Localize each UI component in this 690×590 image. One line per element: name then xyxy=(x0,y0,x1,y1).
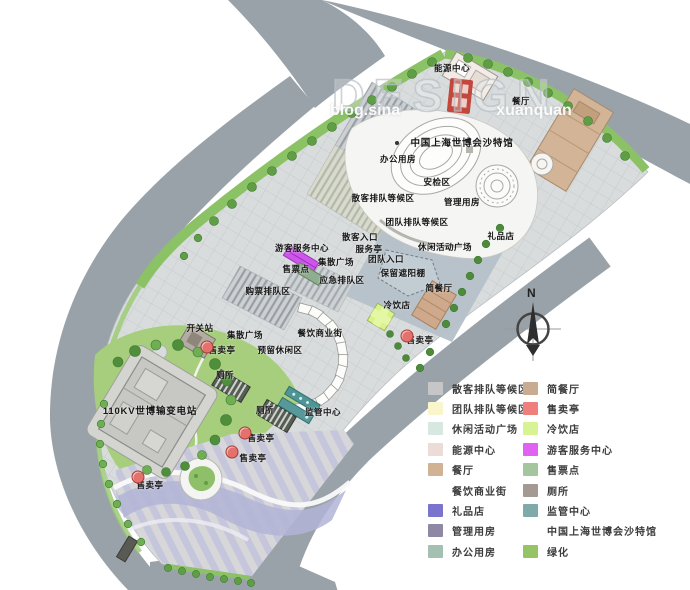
kiosk-marker-icon xyxy=(239,427,252,440)
map-label: 购票排队区 xyxy=(245,285,290,297)
legend-swatch xyxy=(523,402,538,415)
legend-item: 售票点 xyxy=(523,460,657,480)
legend-label: 团队排队等候区 xyxy=(452,401,529,416)
legend-label: 能源中心 xyxy=(452,442,496,457)
map-label: 开关站 xyxy=(186,322,213,334)
legend-label: 办公用房 xyxy=(452,544,496,559)
legend-label: 餐饮商业街 xyxy=(452,483,507,498)
legend-item: 简餐厅 xyxy=(523,378,657,398)
legend-item: 团队排队等候区 xyxy=(428,398,529,418)
legend-item: 散客排队等候区 xyxy=(428,378,529,398)
legend-label: 餐厅 xyxy=(452,462,474,477)
legend-item: 管理用房 xyxy=(428,521,529,541)
map-label: 保留遮阳棚 xyxy=(380,267,425,279)
map-label: 能源中心 xyxy=(434,62,470,74)
map-label: 餐厅 xyxy=(512,95,530,107)
map-label: 预留休闲区 xyxy=(257,344,302,356)
legend-col-left: 散客排队等候区团队排队等候区休闲活动广场能源中心餐厅餐饮商业街礼品店管理用房办公… xyxy=(428,378,529,562)
legend-label: 监管中心 xyxy=(547,503,591,518)
map-label: 办公用房 xyxy=(380,153,416,165)
map-label: 散客入口 xyxy=(342,231,378,243)
map-label: 简餐厅 xyxy=(425,282,452,294)
site-plan-canvas: N DESIGN blog.sina xuanquan 能源中心餐厅中国上海世博… xyxy=(0,0,690,590)
legend-item: 售卖亭 xyxy=(523,398,657,418)
map-label: 团队排队等候区 xyxy=(385,216,448,228)
legend-item: 冷饮店 xyxy=(523,419,657,439)
legend-label: 售卖亭 xyxy=(547,401,580,416)
map-label: 管理用房 xyxy=(444,196,480,208)
map-label: 休闲活动广场 xyxy=(418,241,472,253)
legend-swatch xyxy=(523,463,538,476)
map-label: 厕所 xyxy=(256,404,274,416)
map-label: 应急排队区 xyxy=(319,274,364,286)
legend-swatch xyxy=(523,484,538,497)
map-label: 集散广场 xyxy=(227,329,263,341)
kiosk-marker-icon xyxy=(201,341,214,354)
compass-north-label: N xyxy=(527,286,536,300)
map-label: 监管中心 xyxy=(305,406,341,418)
legend-swatch xyxy=(523,382,538,395)
legend-swatch xyxy=(523,443,538,456)
legend-item: 餐厅 xyxy=(428,460,529,480)
legend-swatch xyxy=(428,463,443,476)
legend-label: 管理用房 xyxy=(452,523,496,538)
legend-swatch xyxy=(523,545,538,558)
kiosk-marker-icon xyxy=(226,446,239,459)
kiosk-marker-icon xyxy=(401,330,414,343)
map-label: 礼品店 xyxy=(487,230,514,242)
legend-swatch xyxy=(428,422,443,435)
legend-swatch xyxy=(428,524,443,537)
seal-stamp-icon xyxy=(447,78,473,114)
legend-item: 餐饮商业街 xyxy=(428,480,529,500)
legend-item: 中国上海世博会沙特馆 xyxy=(523,521,657,541)
map-label: 安检区 xyxy=(423,176,450,188)
legend-item: 能源中心 xyxy=(428,439,529,459)
legend-item: 厕所 xyxy=(523,480,657,500)
legend-col-right: 简餐厅售卖亭冷饮店游客服务中心售票点厕所监管中心中国上海世博会沙特馆绿化 xyxy=(523,378,657,562)
kiosk-marker-icon xyxy=(132,471,145,484)
map-label: 集散广场 xyxy=(318,256,354,268)
legend-label: 冷饮店 xyxy=(547,421,580,436)
legend-label: 游客服务中心 xyxy=(547,442,613,457)
legend-label: 简餐厅 xyxy=(547,381,580,396)
legend-item: 礼品店 xyxy=(428,500,529,520)
map-label: 散客排队等候区 xyxy=(351,192,414,204)
legend-label: 中国上海世博会沙特馆 xyxy=(547,523,657,538)
map-label: 团队入口 xyxy=(368,253,404,265)
map-label: 售卖亭 xyxy=(239,452,266,464)
map-label: 厕所 xyxy=(216,369,234,381)
map-label: 售卖亭 xyxy=(247,432,274,444)
legend-item: 游客服务中心 xyxy=(523,439,657,459)
legend-swatch xyxy=(523,422,538,435)
legend-item: 监管中心 xyxy=(523,500,657,520)
legend-item: 办公用房 xyxy=(428,541,529,561)
legend-swatch xyxy=(428,382,443,395)
legend-swatch xyxy=(428,402,443,415)
map-label: 中国上海世博会沙特馆 xyxy=(410,135,513,149)
map-label: 冷饮店 xyxy=(383,299,410,311)
map-label: 售票点 xyxy=(282,263,309,275)
restaurant-rotunda xyxy=(531,153,553,175)
map-label: 餐饮商业街 xyxy=(297,327,342,339)
legend-label: 休闲活动广场 xyxy=(452,421,518,436)
map-label: 110KV世博输变电站 xyxy=(103,403,197,417)
legend-label: 绿化 xyxy=(547,544,569,559)
legend-swatch xyxy=(523,504,538,517)
legend-item: 休闲活动广场 xyxy=(428,419,529,439)
legend-label: 礼品店 xyxy=(452,503,485,518)
legend-item: 绿化 xyxy=(523,541,657,561)
legend-label: 售票点 xyxy=(547,462,580,477)
legend-label: 厕所 xyxy=(547,483,569,498)
legend-swatch xyxy=(428,504,443,517)
legend-swatch xyxy=(428,545,443,558)
legend-swatch xyxy=(428,443,443,456)
map-label: 游客服务中心 xyxy=(275,242,329,254)
legend-label: 散客排队等候区 xyxy=(452,381,529,396)
